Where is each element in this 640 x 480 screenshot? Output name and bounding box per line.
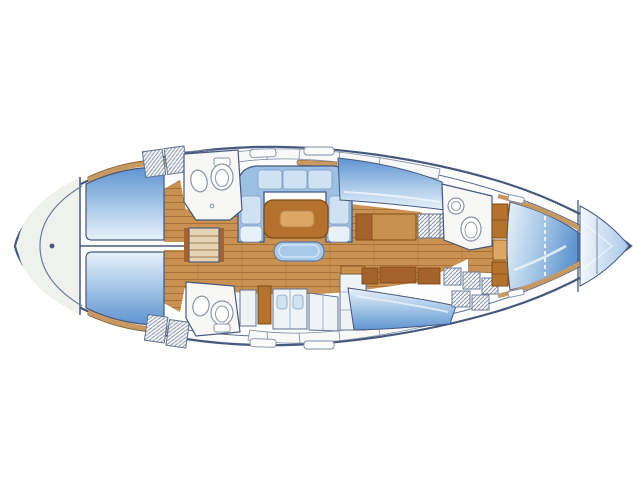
companionway-steps <box>184 228 224 262</box>
galley-locker-wood <box>258 286 271 324</box>
toilet-icon <box>211 301 233 325</box>
backstay-fitting-dot <box>50 244 55 249</box>
sink-icon <box>448 198 464 214</box>
settee-end-cushion-right <box>328 226 350 242</box>
shelf-2 <box>380 267 416 283</box>
galley-counter-1 <box>240 290 256 326</box>
stern-platform <box>18 177 80 315</box>
deck-hatch <box>304 341 334 349</box>
galley-counter-3 <box>309 293 338 331</box>
salon-table-inset <box>280 211 314 227</box>
double-berth <box>86 252 164 324</box>
galley-sink <box>277 295 287 309</box>
floorplan-svg <box>0 0 640 480</box>
yacht-floorplan-image <box>0 0 640 480</box>
desk-dark-panel <box>356 214 372 240</box>
step-rail-left <box>184 228 189 262</box>
shelf-1 <box>362 268 378 284</box>
vanity-top <box>492 204 508 238</box>
aft-head-top <box>184 150 242 220</box>
anchor-locker <box>580 206 629 286</box>
toilet-icon <box>461 217 481 241</box>
shelf-3 <box>418 268 440 284</box>
galley-sink-2 <box>293 295 303 309</box>
deck-hatch <box>304 147 334 155</box>
anchor-locker-area <box>580 206 629 286</box>
vanity-seat <box>493 240 507 260</box>
galley-wood-cap <box>341 266 365 274</box>
deck-hatch <box>250 339 276 348</box>
double-berth <box>86 168 164 240</box>
aft-head-bottom <box>186 282 240 336</box>
settee-end-cushion-left <box>240 226 262 242</box>
forward-head <box>442 184 492 250</box>
step-rail-right <box>219 228 224 262</box>
deck-hatch <box>250 149 276 158</box>
toilet-tank <box>214 324 230 332</box>
